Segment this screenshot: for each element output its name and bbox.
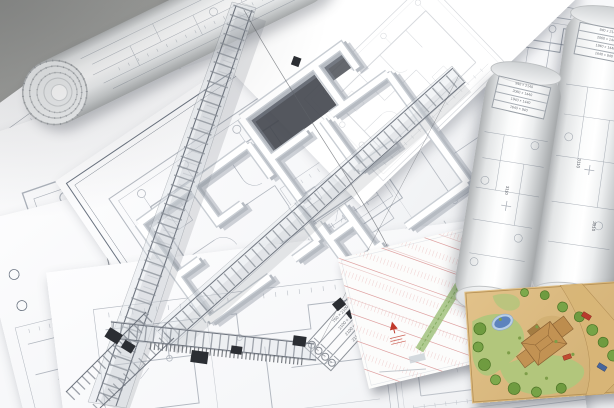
scene-architectural-blueprints: 1750 × 21001 22100 × 14602 32100 × 14453… (0, 0, 614, 408)
roll-dim-label: 3010 (591, 221, 597, 232)
plat-scale-block (409, 353, 426, 364)
roll-dim-label: 3110 (575, 158, 581, 169)
landscape-plan-card (464, 280, 614, 403)
roll-dim-label: 3110 (504, 186, 510, 196)
